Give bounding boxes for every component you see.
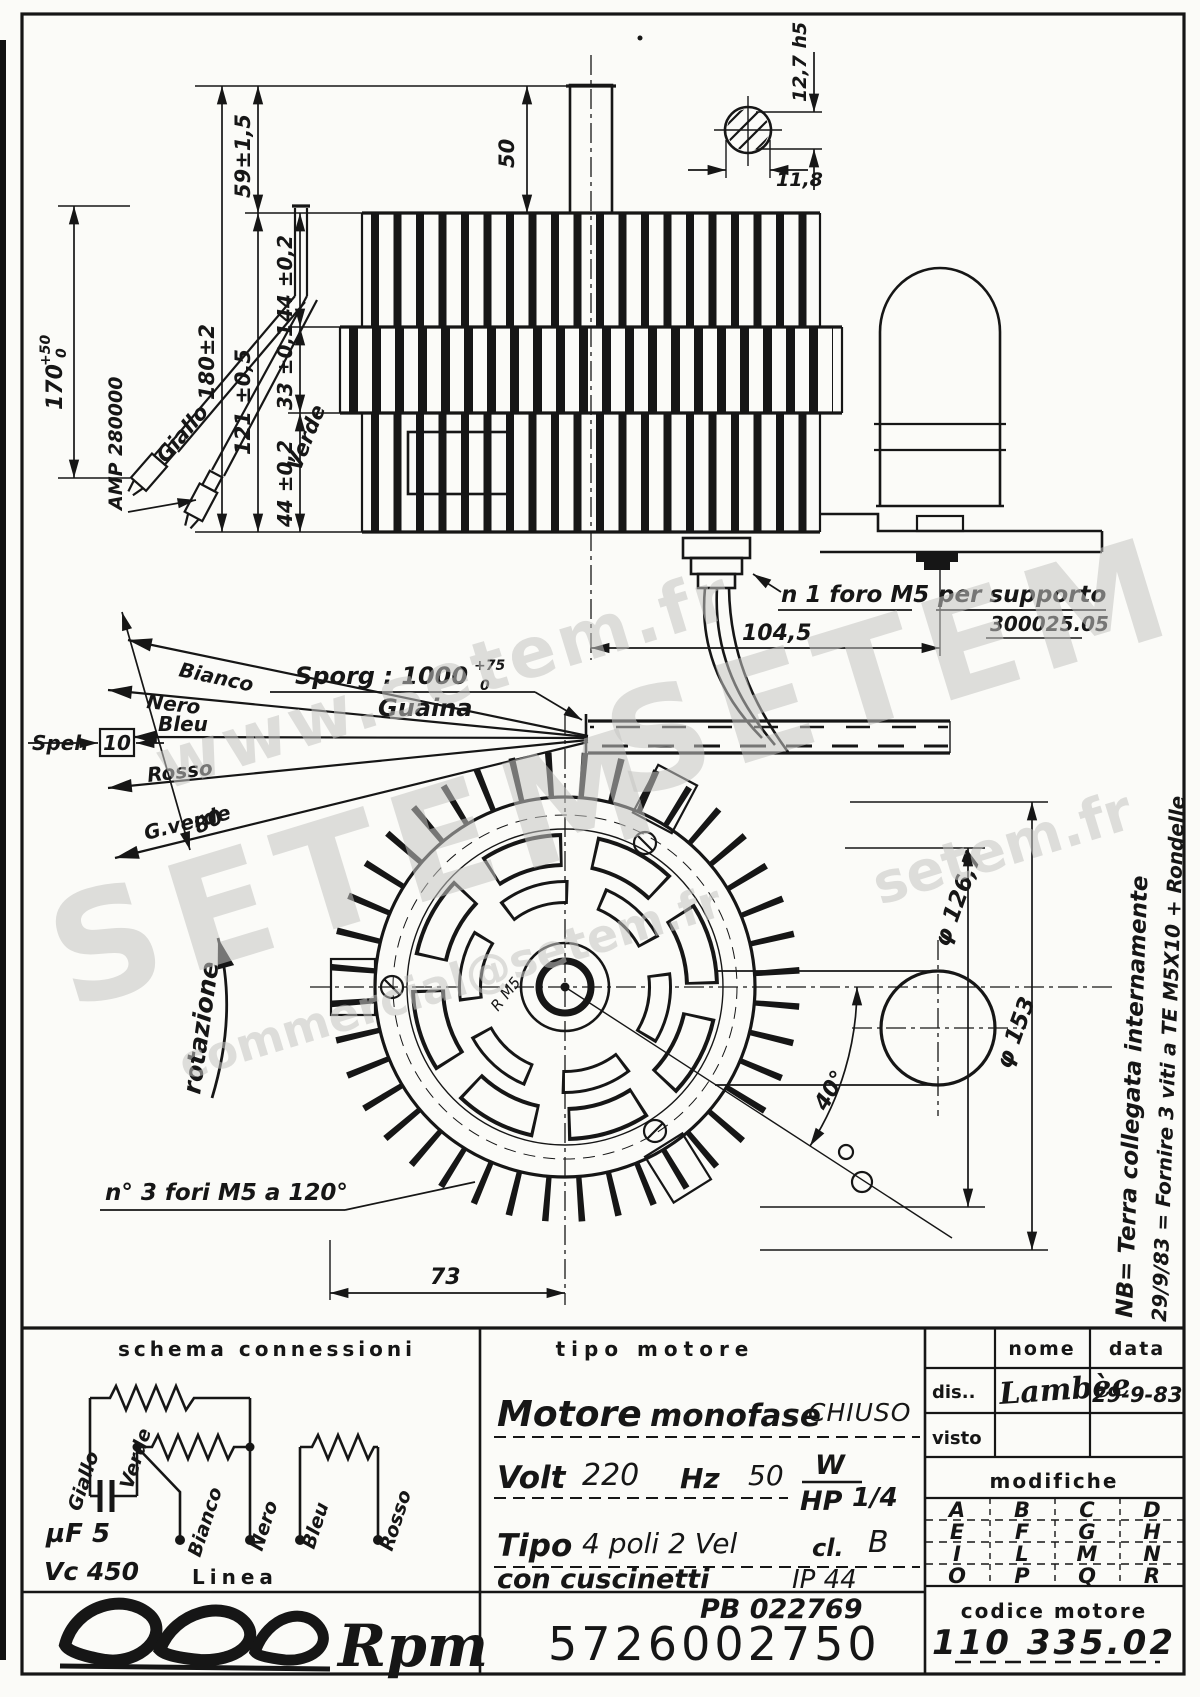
holes-note: n° 3 fori M5 a 120°: [105, 1180, 348, 1206]
modifiche-letter: R: [1144, 1564, 1160, 1588]
modifiche-letter: A: [947, 1498, 965, 1522]
modifiche-letter: N: [1143, 1542, 1161, 1566]
motore-label: Motore: [497, 1394, 642, 1435]
modifiche-letter: G: [1078, 1520, 1095, 1544]
volt-value: 220: [582, 1458, 639, 1493]
tipo-label: Tipo: [497, 1528, 572, 1564]
hp-label: HP: [800, 1486, 843, 1517]
dim-44-top: 44 ±0,2: [273, 235, 297, 323]
tipo-header: tipo motore: [556, 1337, 755, 1361]
dim-cable-170: 170: [43, 364, 68, 410]
strip-length: 10: [103, 731, 131, 755]
ip-value: IP 44: [792, 1565, 857, 1595]
dim-73: 73: [430, 1265, 461, 1290]
hz-label: Hz: [680, 1462, 720, 1495]
visto-label: visto: [932, 1428, 982, 1449]
tipo-value: 4 poli 2 Vel: [582, 1527, 738, 1560]
monofase-label: monofase: [650, 1398, 821, 1434]
modifiche-letter: C: [1079, 1498, 1095, 1522]
part-number: 5726002750: [548, 1617, 881, 1671]
dim-cable-tol-up: +50: [38, 335, 54, 366]
cl-value: B: [868, 1525, 889, 1560]
modifiche-letter: E: [950, 1520, 965, 1544]
dim-cable-tol-dn: 0: [54, 348, 70, 358]
modifiche-letter: P: [1014, 1564, 1030, 1588]
data-header: data: [1109, 1338, 1165, 1360]
modifiche-letter: F: [1015, 1520, 1030, 1544]
drawing-sheet: 180±2 59±1,5 121 ±0,5 44 ±0,2 33 ±0,1 44…: [0, 0, 1200, 1697]
modifiche-letter: M: [1077, 1542, 1098, 1566]
codice-header: codice motore: [961, 1599, 1147, 1623]
schema-voltage: Vc 450: [44, 1557, 139, 1586]
nome-header: nome: [1008, 1338, 1075, 1360]
modifiche-letter: D: [1143, 1498, 1160, 1522]
cl-label: cl.: [812, 1534, 844, 1562]
scan-edge-artifact: [0, 40, 6, 1660]
hp-value: 1/4: [852, 1483, 898, 1513]
hz-value: 50: [748, 1459, 784, 1492]
dim-key-width: 11,8: [776, 169, 823, 191]
modifiche-letter: Q: [1078, 1564, 1096, 1588]
modifiche-letter: I: [953, 1542, 961, 1566]
dim-key-height: 12,7 h5: [789, 22, 811, 102]
support-bolt: [916, 552, 958, 562]
dis-label: dis..: [932, 1382, 975, 1403]
chiuso-label: CHIUSO: [808, 1398, 911, 1427]
modifiche-letter: H: [1143, 1520, 1161, 1544]
w-label: W: [815, 1450, 846, 1481]
modifiche-letter: L: [1015, 1542, 1028, 1566]
brand-name: Rpm: [336, 1612, 488, 1680]
scan-speck: [638, 36, 643, 41]
motor-drawing-svg: 180±2 59±1,5 121 ±0,5 44 ±0,2 33 ±0,1 44…: [0, 0, 1200, 1697]
terminal-bianco: [175, 1535, 185, 1545]
modifiche-header: modifiche: [990, 1469, 1119, 1493]
schema-capacitance: µF 5: [45, 1519, 110, 1549]
schema-header: schema connessioni: [118, 1337, 416, 1361]
modifiche-letter: B: [1014, 1498, 1030, 1522]
dim-50: 50: [495, 139, 519, 168]
dim-59: 59±1,5: [231, 114, 255, 198]
bearings-label: con cuscinetti: [497, 1564, 710, 1595]
schema-linea: Linea: [192, 1565, 278, 1589]
modifiche-letter: O: [948, 1564, 966, 1588]
volt-label: Volt: [497, 1460, 567, 1496]
terminal-label: AMP 280000: [105, 377, 127, 512]
codice-value: 110 335.02: [932, 1623, 1176, 1663]
dis-date: 29-9-83: [1092, 1383, 1183, 1407]
